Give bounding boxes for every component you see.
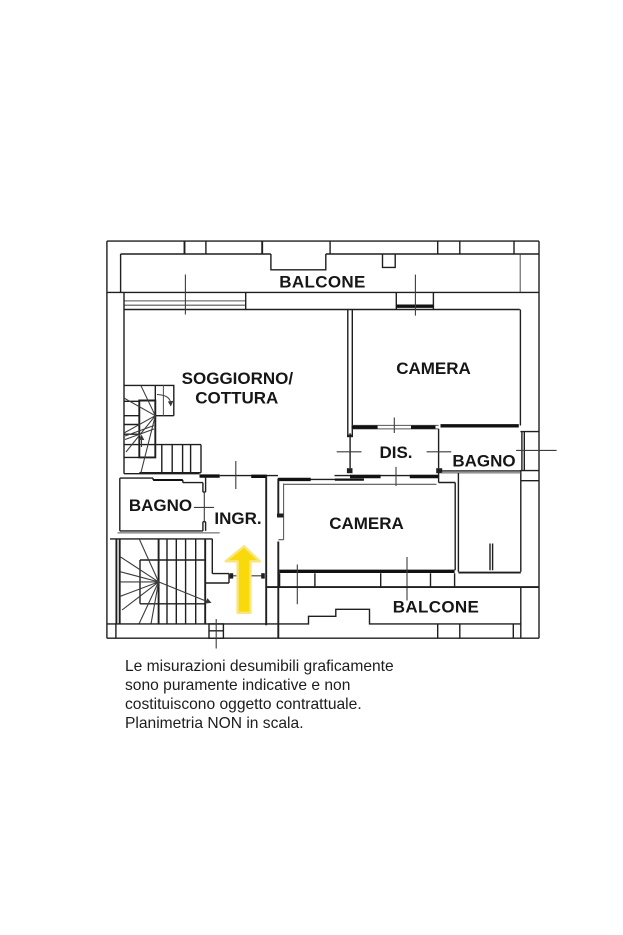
svg-text:SOGGIORNO/: SOGGIORNO/	[182, 369, 294, 388]
svg-text:BAGNO: BAGNO	[452, 452, 515, 471]
svg-text:BALCONE: BALCONE	[393, 598, 480, 617]
svg-text:BAGNO: BAGNO	[129, 496, 192, 515]
svg-text:DIS.: DIS.	[379, 443, 412, 462]
svg-text:CAMERA: CAMERA	[329, 514, 404, 533]
svg-text:INGR.: INGR.	[214, 509, 261, 528]
svg-text:BALCONE: BALCONE	[279, 272, 366, 291]
svg-text:COTTURA: COTTURA	[195, 388, 278, 407]
svg-text:CAMERA: CAMERA	[396, 359, 471, 378]
